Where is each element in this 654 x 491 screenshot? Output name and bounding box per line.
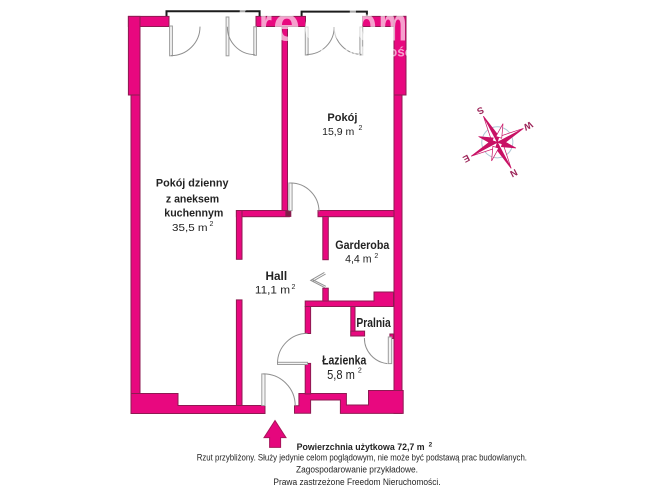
svg-text:35,5 m: 35,5 m <box>172 223 208 234</box>
svg-text:S: S <box>475 105 486 118</box>
svg-text:5,8 m: 5,8 m <box>327 367 355 382</box>
svg-text:z aneksem: z aneksem <box>166 193 219 205</box>
svg-text:N: N <box>508 167 519 180</box>
svg-text:e: e <box>273 0 300 52</box>
svg-text:2: 2 <box>358 368 362 375</box>
svg-text:Powierzchnia użytkowa 72,7 m: Powierzchnia użytkowa 72,7 m <box>297 442 425 453</box>
svg-text:nieruchomości: nieruchomości <box>320 45 416 60</box>
svg-text:4,4 m: 4,4 m <box>345 253 371 265</box>
svg-text:f: f <box>236 0 250 52</box>
svg-text:W: W <box>522 119 535 133</box>
svg-text:2: 2 <box>374 253 378 260</box>
svg-text:kuchennym: kuchennym <box>164 208 223 220</box>
svg-text:Pokój: Pokój <box>327 112 357 124</box>
svg-text:Łazienka: Łazienka <box>322 352 367 367</box>
svg-text:15,9 m: 15,9 m <box>322 127 354 138</box>
svg-text:2: 2 <box>429 441 433 448</box>
svg-text:Hall: Hall <box>266 269 288 283</box>
svg-text:Pokój dzienny: Pokój dzienny <box>156 178 229 190</box>
svg-text:2: 2 <box>291 284 295 291</box>
svg-text:Pralnia: Pralnia <box>356 315 391 330</box>
svg-text:E: E <box>461 153 472 166</box>
svg-text:Garderoba: Garderoba <box>335 239 389 252</box>
svg-text:r: r <box>259 0 272 52</box>
svg-text:2: 2 <box>358 125 362 132</box>
svg-text:11,1 m: 11,1 m <box>255 285 290 297</box>
svg-text:2: 2 <box>209 221 213 228</box>
svg-text:Zagospodarowanie przykładowe.: Zagospodarowanie przykładowe. <box>296 464 418 474</box>
svg-text:Rzut przybliżony. Służy jedyni: Rzut przybliżony. Służy jedynie celom po… <box>197 453 527 463</box>
svg-text:Prawa zastrzeżone Freedom Nier: Prawa zastrzeżone Freedom Nieruchomości. <box>273 477 440 487</box>
